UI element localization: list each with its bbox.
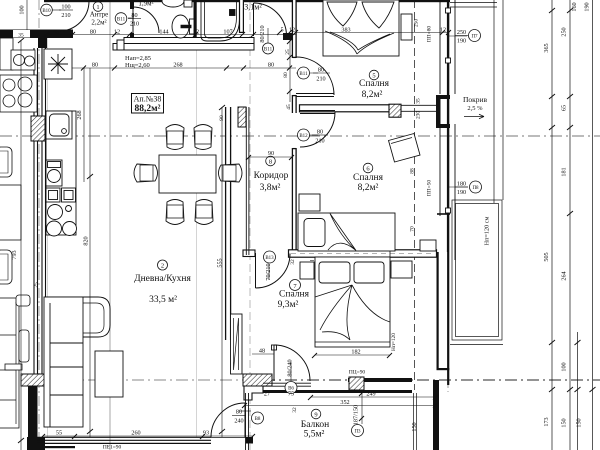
svg-text:365: 365 [543, 43, 550, 52]
svg-text:В13: В13 [265, 256, 274, 261]
svg-text:12: 12 [193, 29, 199, 36]
svg-text:ПЦ=90: ПЦ=90 [349, 370, 366, 376]
svg-text:80: 80 [131, 12, 137, 19]
svg-text:210: 210 [130, 21, 139, 28]
svg-text:150: 150 [411, 422, 418, 431]
svg-text:ПП=50: ПП=50 [427, 180, 433, 197]
svg-text:3,8м²: 3,8м² [260, 183, 281, 193]
svg-text:55: 55 [56, 430, 62, 437]
svg-text:Балкон: Балкон [301, 420, 329, 430]
svg-text:80: 80 [268, 62, 274, 69]
svg-text:268: 268 [76, 110, 83, 119]
svg-text:9: 9 [314, 412, 317, 419]
svg-text:2: 2 [161, 263, 164, 270]
svg-text:5: 5 [280, 27, 283, 34]
svg-text:260: 260 [131, 430, 140, 437]
svg-text:70: 70 [410, 226, 416, 232]
svg-text:П3: П3 [354, 430, 361, 435]
svg-text:100: 100 [19, 5, 26, 14]
svg-text:100: 100 [561, 362, 568, 371]
svg-text:144: 144 [159, 29, 168, 36]
svg-text:35: 35 [416, 98, 422, 104]
svg-text:8: 8 [269, 159, 272, 166]
svg-text:80/240: 80/240 [287, 359, 294, 376]
svg-text:190: 190 [584, 2, 591, 11]
svg-text:70/210: 70/210 [265, 263, 272, 280]
svg-text:33,5 м²: 33,5 м² [149, 295, 177, 305]
svg-text:190: 190 [457, 189, 466, 196]
svg-text:210: 210 [316, 76, 325, 83]
svg-text:173: 173 [543, 417, 550, 426]
svg-text:5,5м²: 5,5м² [304, 430, 325, 440]
svg-text:2,5 %: 2,5 % [467, 105, 483, 112]
svg-text:П8: П8 [472, 186, 479, 191]
svg-text:Нап=2,85: Нап=2,85 [125, 55, 151, 62]
svg-text:268: 268 [173, 62, 182, 69]
svg-text:250: 250 [414, 19, 420, 27]
svg-text:150: 150 [576, 418, 583, 427]
svg-text:383: 383 [341, 27, 350, 34]
svg-text:П7: П7 [471, 35, 478, 40]
svg-text:В10: В10 [42, 9, 51, 14]
svg-text:230: 230 [416, 111, 422, 119]
svg-text:65: 65 [561, 105, 568, 111]
svg-text:80: 80 [92, 62, 98, 69]
svg-text:35: 35 [18, 33, 24, 39]
svg-text:8,2м²: 8,2м² [358, 183, 379, 193]
svg-text:Спалня: Спалня [359, 79, 390, 89]
svg-text:В12: В12 [299, 134, 308, 139]
svg-text:8,2м²: 8,2м² [362, 90, 383, 100]
svg-text:555: 555 [217, 258, 224, 267]
svg-text:Нп=120: Нп=120 [391, 333, 397, 351]
svg-text:9,3м²: 9,3м² [278, 300, 299, 310]
svg-text:107: 107 [223, 29, 232, 36]
svg-text:Спалня: Спалня [279, 290, 310, 300]
svg-text:Коридор: Коридор [254, 171, 289, 181]
svg-text:Ап.№38: Ап.№38 [134, 95, 162, 104]
svg-text:90: 90 [268, 150, 274, 157]
svg-text:48: 48 [259, 348, 265, 355]
svg-text:Нп=120 см: Нп=120 см [484, 217, 491, 246]
svg-text:793: 793 [11, 250, 18, 259]
svg-text:88,2м²: 88,2м² [135, 104, 161, 114]
svg-text:27: 27 [264, 391, 270, 398]
svg-text:45: 45 [53, 29, 59, 36]
svg-text:150: 150 [561, 418, 568, 427]
svg-text:352: 352 [340, 399, 349, 406]
svg-text:820: 820 [83, 236, 90, 245]
svg-text:210: 210 [61, 12, 70, 19]
svg-text:264: 264 [561, 271, 568, 280]
svg-text:100: 100 [61, 4, 70, 11]
svg-text:Нщ=2,60: Нщ=2,60 [125, 62, 150, 69]
svg-text:45: 45 [286, 104, 292, 110]
svg-text:1,9м²: 1,9м² [138, 0, 153, 8]
svg-text:182: 182 [351, 349, 360, 356]
svg-text:В11: В11 [117, 18, 126, 23]
svg-text:25: 25 [34, 282, 40, 288]
svg-text:88: 88 [410, 168, 416, 174]
svg-text:75: 75 [288, 391, 294, 398]
svg-text:181: 181 [561, 167, 568, 176]
svg-text:190: 190 [457, 38, 466, 45]
svg-text:250: 250 [561, 27, 568, 36]
svg-text:12: 12 [289, 27, 295, 34]
svg-text:90: 90 [219, 115, 225, 121]
svg-text:80: 80 [318, 67, 324, 74]
svg-text:249: 249 [366, 391, 375, 398]
svg-text:250: 250 [457, 29, 466, 36]
svg-text:93: 93 [203, 430, 209, 437]
svg-text:160: 160 [571, 2, 578, 11]
svg-text:80: 80 [317, 129, 323, 136]
svg-text:Спалня: Спалня [353, 173, 384, 183]
svg-text:2,2м²: 2,2м² [91, 19, 106, 27]
svg-text:В11: В11 [264, 48, 273, 53]
svg-text:12: 12 [114, 29, 120, 36]
svg-text:Антре: Антре [90, 11, 109, 19]
svg-text:80: 80 [236, 409, 242, 416]
svg-text:25: 25 [285, 49, 291, 55]
svg-text:В8: В8 [255, 417, 261, 422]
svg-text:В11: В11 [299, 72, 308, 77]
svg-text:Дневна/Кухня: Дневна/Кухня [134, 274, 191, 284]
svg-text:80/210: 80/210 [259, 25, 266, 42]
svg-text:80: 80 [283, 72, 289, 78]
svg-text:32: 32 [290, 259, 296, 265]
svg-text:Покрив: Покрив [463, 95, 488, 104]
svg-text:505: 505 [543, 252, 550, 261]
svg-text:240: 240 [234, 418, 243, 425]
svg-text:187/150: 187/150 [353, 405, 360, 425]
svg-text:3,1м²: 3,1м² [244, 3, 262, 12]
svg-text:210: 210 [315, 138, 324, 145]
svg-text:ПП=80: ПП=80 [427, 26, 433, 43]
svg-text:80: 80 [90, 29, 96, 36]
svg-text:180: 180 [457, 181, 466, 188]
svg-text:12: 12 [440, 27, 446, 34]
svg-text:ПЕ1=90: ПЕ1=90 [103, 445, 122, 450]
svg-text:32: 32 [292, 407, 298, 413]
